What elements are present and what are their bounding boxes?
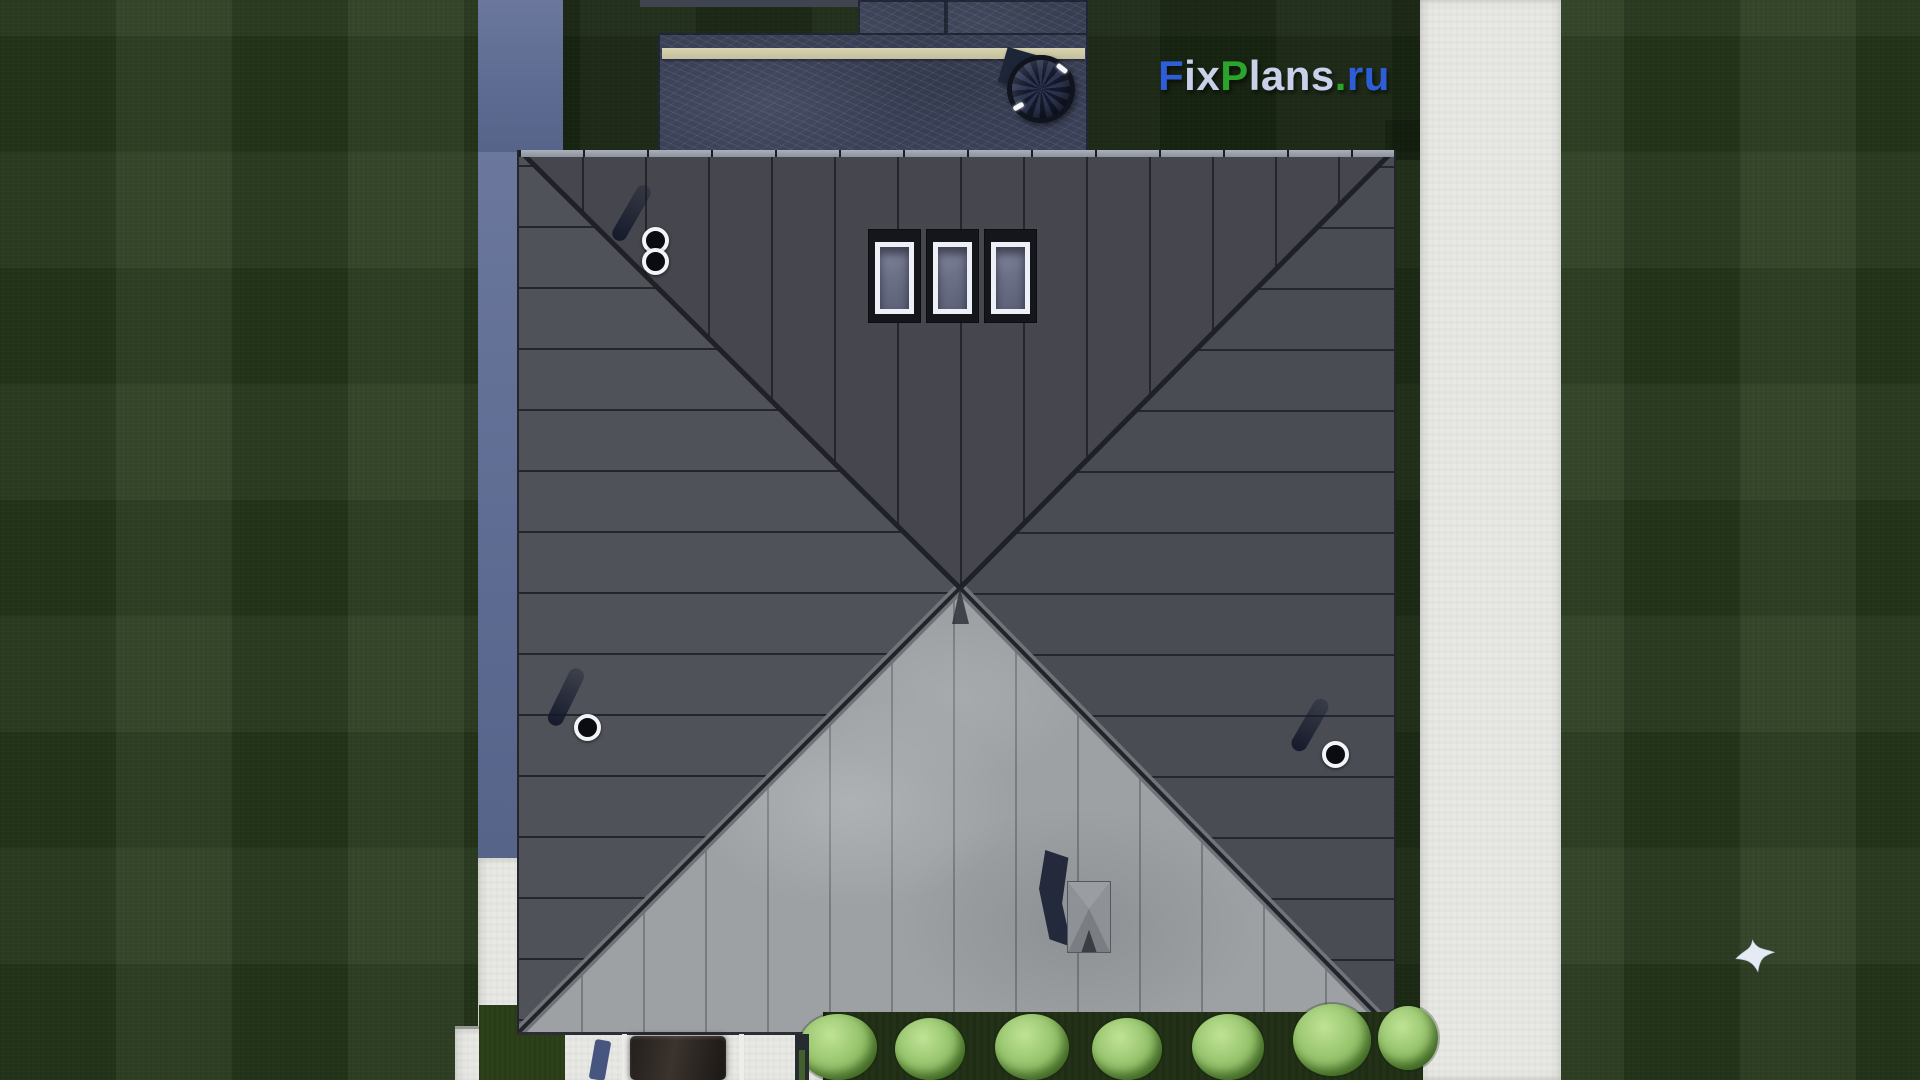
bird bbox=[1729, 935, 1780, 981]
watermark-part: F bbox=[1158, 52, 1184, 99]
bush bbox=[1192, 1014, 1264, 1080]
roof-vent-pipe bbox=[1322, 741, 1349, 768]
watermark-part: lans bbox=[1249, 52, 1335, 99]
roof-vent-pipe bbox=[574, 714, 601, 741]
terrace-top-right-block bbox=[946, 0, 1088, 36]
roof-vent-pipe bbox=[642, 248, 669, 275]
planting-sliver bbox=[799, 1050, 805, 1080]
aerial-render-scene: FixPlans.ru bbox=[0, 0, 1920, 1080]
skylight-2 bbox=[927, 230, 978, 322]
watermark-part: . bbox=[1335, 52, 1347, 99]
skylight-3 bbox=[985, 230, 1036, 322]
terrace-top-edge bbox=[640, 0, 858, 7]
concrete-path-right bbox=[1420, 0, 1561, 1080]
watermark-part: ru bbox=[1347, 52, 1390, 99]
roof-eave-edge bbox=[519, 150, 1394, 157]
bush bbox=[1092, 1018, 1162, 1080]
skylight-glass bbox=[933, 242, 972, 314]
bush bbox=[1378, 1006, 1438, 1070]
skylight-glass bbox=[875, 242, 914, 314]
skylight-1 bbox=[869, 230, 920, 322]
watermark-part: P bbox=[1220, 52, 1249, 99]
watermark: FixPlans.ru bbox=[1158, 52, 1390, 100]
watermark-part: ix bbox=[1184, 52, 1220, 99]
bush bbox=[799, 1014, 877, 1080]
chimney bbox=[1068, 882, 1110, 952]
wall-top-left bbox=[478, 0, 563, 152]
bush bbox=[1293, 1004, 1371, 1076]
bush bbox=[995, 1014, 1069, 1080]
bush bbox=[895, 1018, 965, 1080]
hip-roof bbox=[517, 150, 1396, 1035]
skylight-glass bbox=[991, 242, 1030, 314]
car-roof bbox=[630, 1036, 726, 1080]
rattan-chair bbox=[1007, 55, 1075, 123]
